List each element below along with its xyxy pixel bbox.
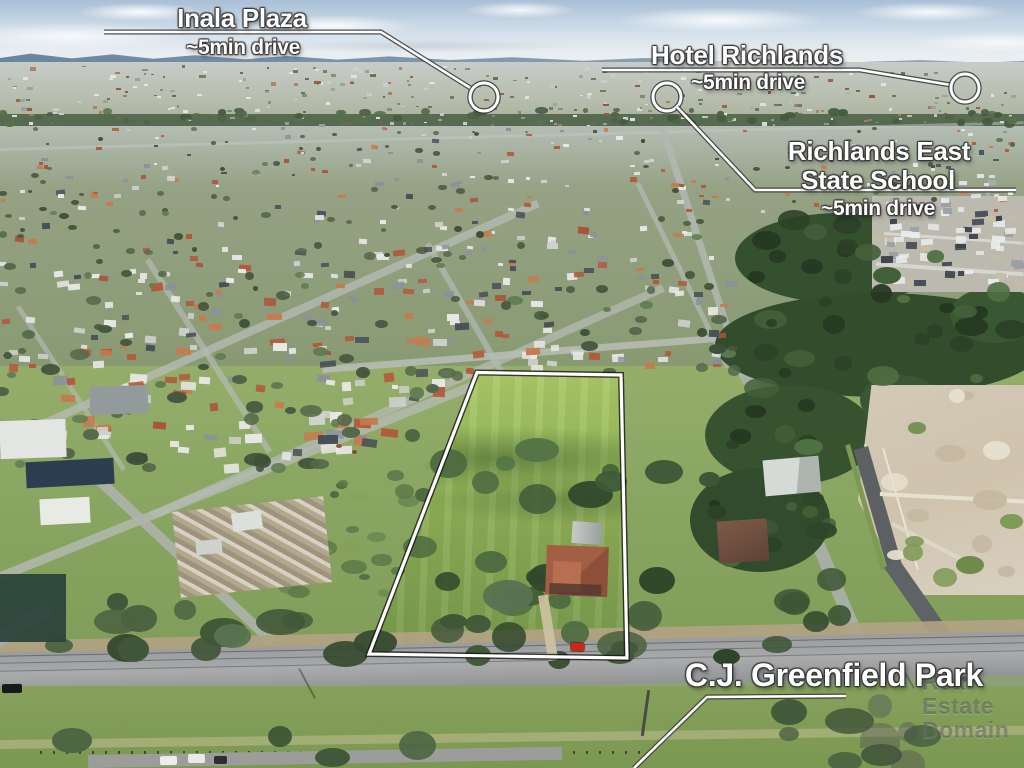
school-label-line2: State School <box>801 167 955 194</box>
annotation-overlay <box>0 0 1024 768</box>
park-leader-line <box>634 696 846 768</box>
property-boundary-outline <box>369 373 627 659</box>
inala-plaza-label: Inala Plaza <box>177 5 307 32</box>
watermark-line: Domain <box>922 718 1009 742</box>
school-label-line1: Richlands East <box>788 138 970 165</box>
school-drive-time: ~5min drive <box>821 198 935 220</box>
hotel-richlands-location-circle <box>951 74 979 102</box>
leader-line-shadow <box>634 696 846 768</box>
inala-plaza-location-circle <box>470 83 498 111</box>
people-icon <box>858 692 928 768</box>
inala-plaza-drive-time: ~5min drive <box>186 37 300 59</box>
aerial-photo: Real Estate Domain Inala Plaza ~5min dri… <box>0 0 1024 768</box>
hotel-richlands-label: Hotel Richlands <box>651 42 843 69</box>
property-boundary <box>369 373 627 659</box>
park-label: C.J. Greenfield Park <box>685 659 983 693</box>
hotel-richlands-drive-time: ~5min drive <box>691 72 805 94</box>
school-location-circle <box>653 83 681 111</box>
watermark-line: Estate <box>922 694 1009 718</box>
